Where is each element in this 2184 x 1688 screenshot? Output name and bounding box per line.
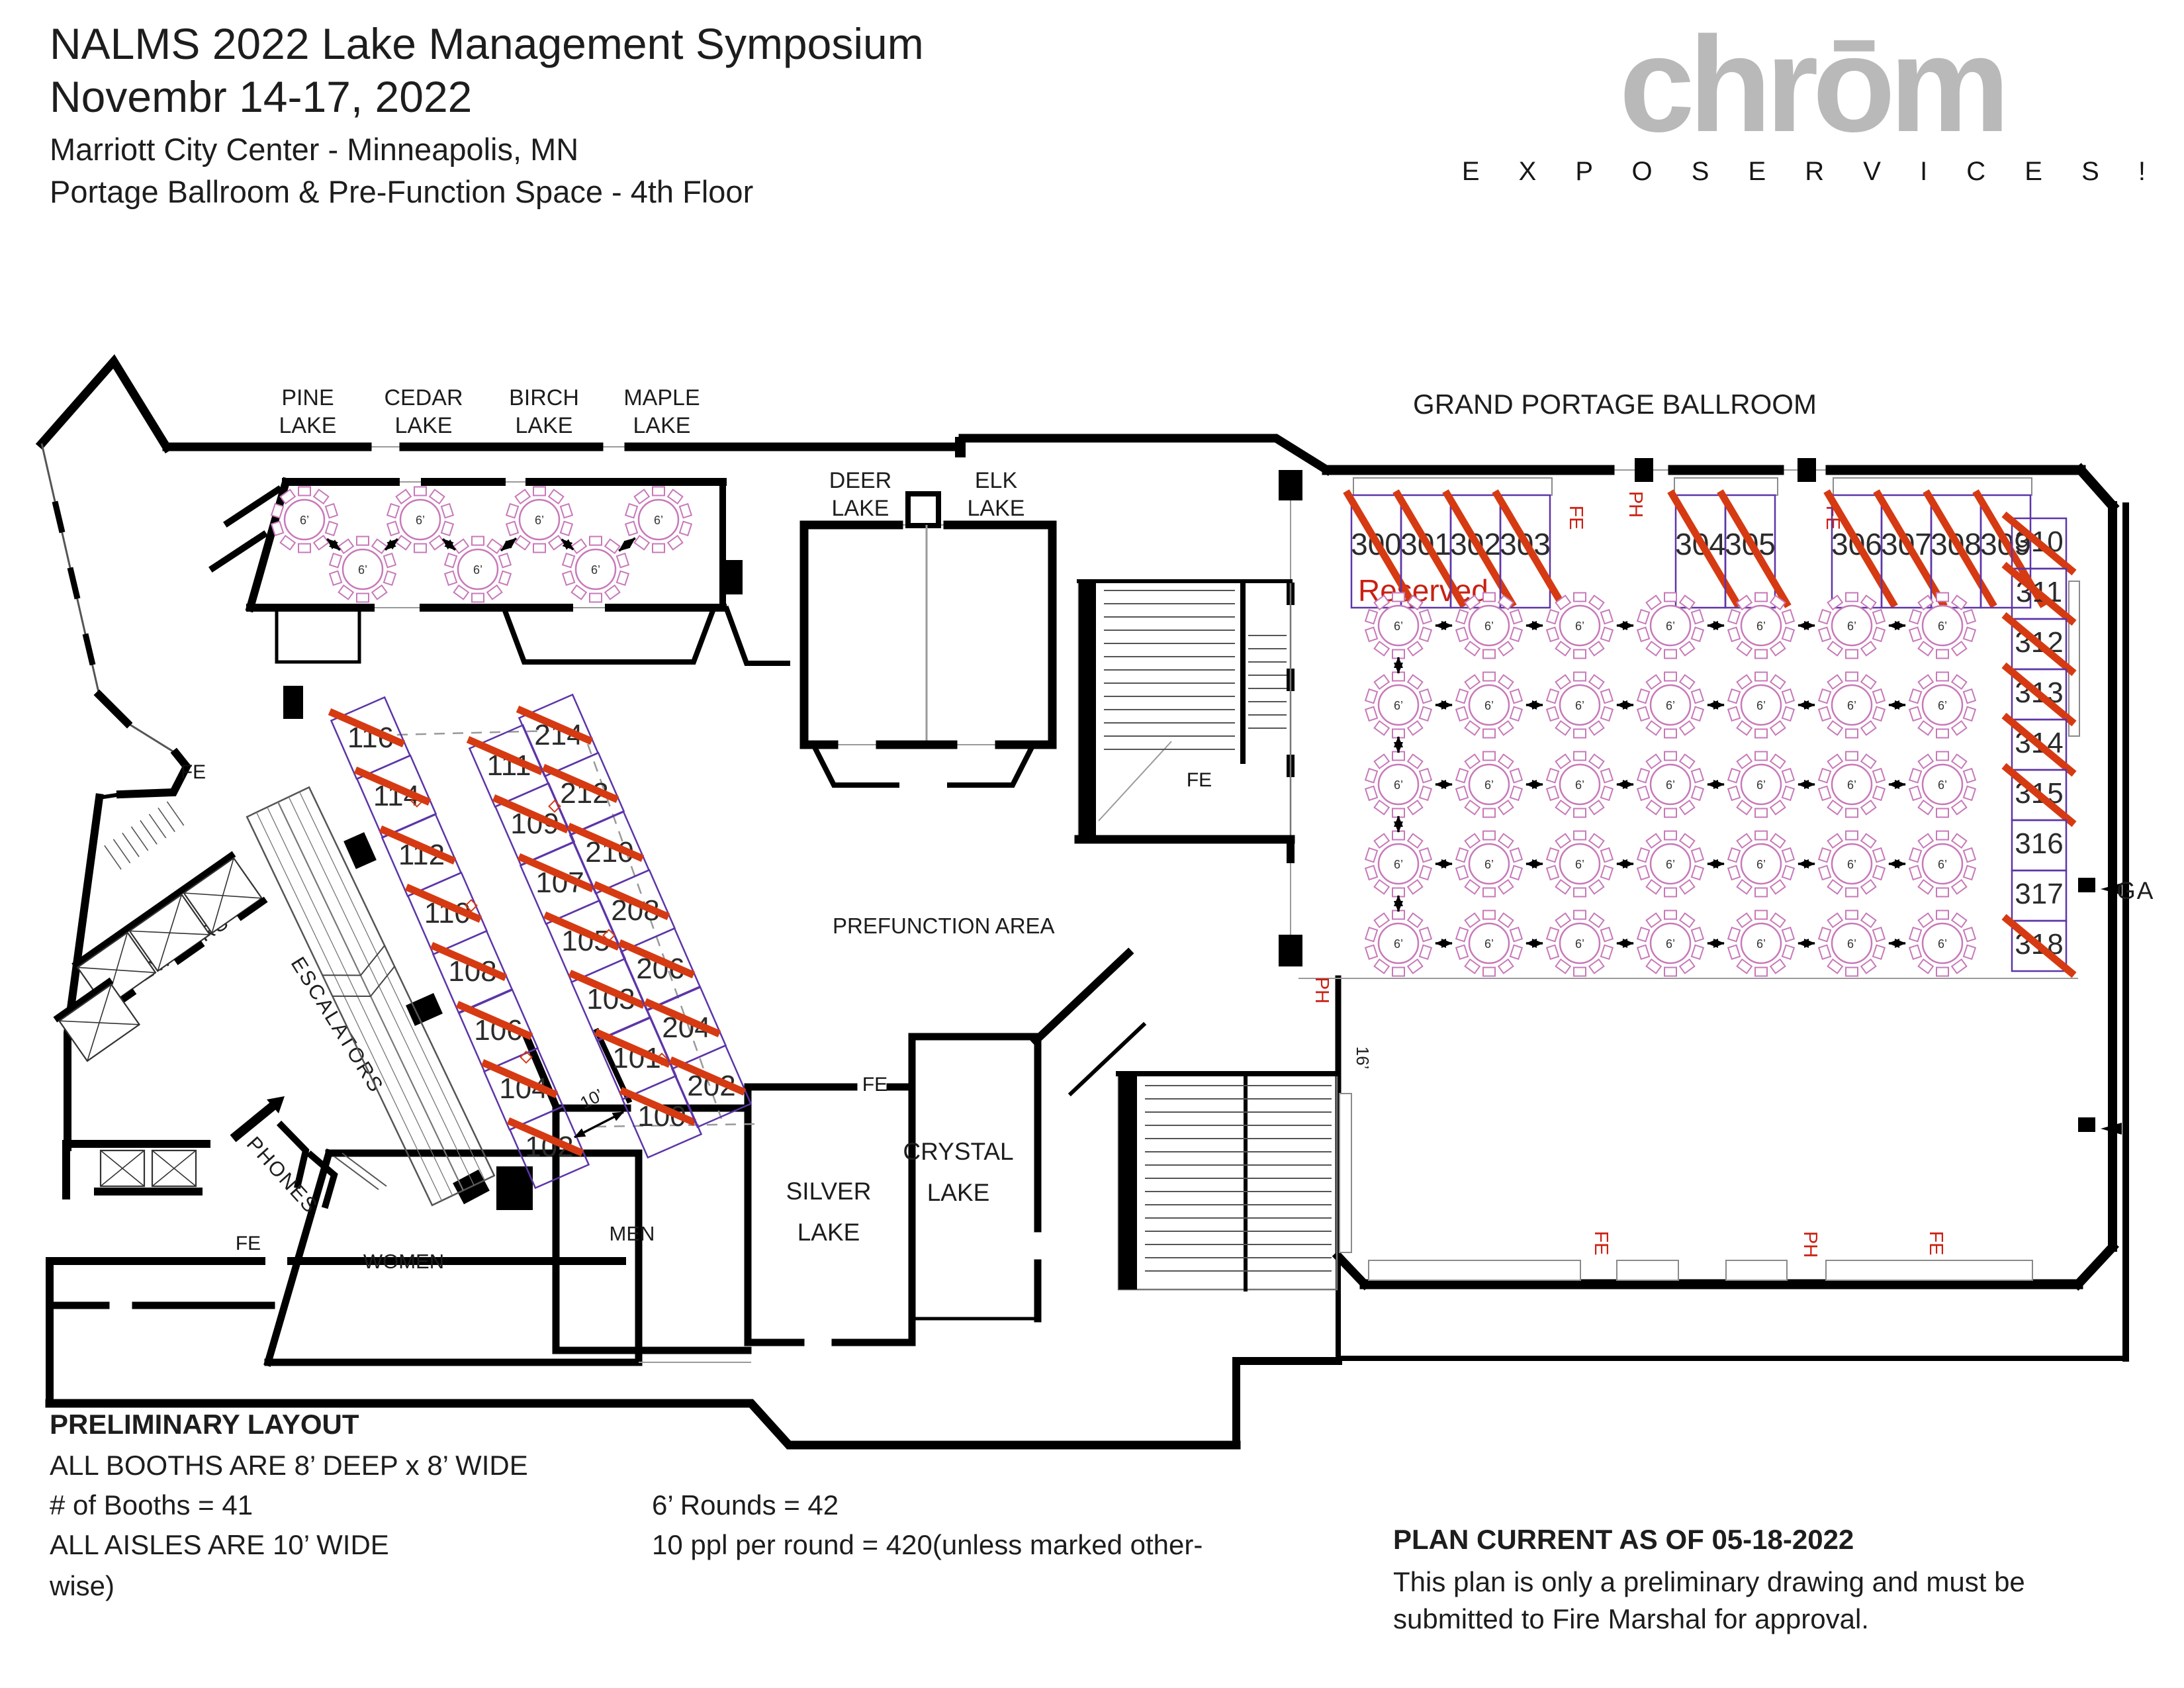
chair	[1456, 689, 1468, 703]
chair	[1680, 800, 1694, 814]
chair	[330, 553, 341, 567]
table-size-label: 6’	[473, 563, 482, 577]
chair	[1589, 721, 1604, 735]
chair	[668, 490, 682, 504]
room-label-elk-lake: ELK	[975, 468, 1018, 493]
chair	[1365, 945, 1377, 959]
chair	[1574, 809, 1586, 818]
chair	[396, 490, 411, 504]
chair	[1556, 959, 1570, 973]
round-table: 6’	[1819, 593, 1885, 659]
chair	[1664, 752, 1676, 761]
round-table: 6’	[1637, 831, 1704, 897]
chair	[1365, 927, 1377, 941]
marker-ph: PH	[1625, 491, 1646, 518]
chair	[1365, 866, 1377, 880]
chair	[1846, 809, 1858, 818]
spacing-arrow	[562, 539, 574, 549]
stairs-lower	[1145, 1086, 1332, 1271]
chair	[1465, 800, 1480, 814]
chair	[1664, 888, 1676, 897]
chair	[1952, 880, 1966, 894]
chair	[1420, 769, 1432, 782]
chair	[1737, 914, 1752, 927]
table-size-label: 6’	[300, 514, 309, 527]
table-size-label: 6’	[1938, 778, 1947, 792]
room-label-silver-lake: SILVER	[786, 1178, 872, 1205]
marker-fe: FE	[1565, 505, 1586, 530]
chair	[1483, 593, 1495, 602]
chair	[1936, 593, 1948, 602]
chair	[1365, 848, 1377, 862]
chair	[1936, 650, 1948, 659]
stairs-upper	[1104, 590, 1287, 749]
chair	[1510, 786, 1522, 800]
room-label-phones: PHONES	[242, 1132, 323, 1218]
spacing-arrow	[385, 539, 398, 549]
room-label-crystal-lake: LAKE	[927, 1179, 990, 1206]
chair	[1919, 959, 1933, 973]
chair	[1589, 641, 1604, 655]
round-table: 6’	[1637, 911, 1704, 976]
chair	[1589, 800, 1604, 814]
chair	[1637, 610, 1649, 624]
table-size-label: 6’	[1756, 699, 1766, 712]
note-booth-count: # of Booths = 41	[50, 1485, 253, 1525]
chair	[1737, 755, 1752, 769]
chair	[516, 536, 530, 549]
chair	[472, 537, 484, 545]
round-table: 6’	[1547, 752, 1613, 818]
chair	[1692, 848, 1704, 862]
chair	[1909, 610, 1921, 624]
chair	[1936, 831, 1948, 840]
table-size-label: 6’	[1756, 937, 1766, 951]
spacing-arrow	[574, 1112, 623, 1137]
chair	[1408, 880, 1422, 894]
chair	[1861, 914, 1876, 927]
chair	[1420, 628, 1432, 641]
chair	[1420, 866, 1432, 880]
chair	[1692, 769, 1704, 782]
chair	[298, 487, 310, 496]
chair	[563, 571, 574, 585]
chair	[1692, 927, 1704, 941]
chair	[1861, 641, 1876, 655]
chair	[1664, 673, 1676, 681]
table-size-label: 6’	[1394, 937, 1403, 951]
room-label-grand-portage-ballroom: GRAND PORTAGE BALLROOM	[1413, 389, 1817, 420]
chair	[1680, 834, 1694, 848]
chair	[1680, 959, 1694, 973]
chair	[1692, 707, 1704, 721]
table-size-label: 6’	[1575, 937, 1584, 951]
chair	[454, 539, 469, 553]
chair	[1547, 945, 1559, 959]
chair	[357, 537, 369, 545]
round-table: 6’	[1728, 911, 1794, 976]
chair	[1755, 888, 1767, 897]
chair	[1647, 959, 1661, 973]
page: NALMS 2022 Lake Management Symposium Nov…	[0, 0, 2184, 1688]
chair	[1601, 866, 1613, 880]
chair	[1637, 689, 1649, 703]
chair	[1483, 911, 1495, 919]
table-size-label: 6’	[1666, 699, 1675, 712]
chair	[1770, 880, 1785, 894]
chair	[1647, 914, 1661, 927]
chair	[1392, 593, 1404, 602]
chair	[533, 544, 545, 553]
chair	[1873, 848, 1885, 862]
chair	[1365, 707, 1377, 721]
table-size-label: 6’	[654, 514, 663, 527]
chair	[1465, 675, 1480, 689]
chair	[1755, 911, 1767, 919]
chair	[1846, 673, 1858, 681]
chair	[1498, 834, 1513, 848]
table-size-label: 6’	[1666, 620, 1675, 633]
chair	[1728, 786, 1740, 800]
round-table: 6’	[1456, 673, 1522, 738]
chair	[1465, 721, 1480, 735]
chair	[1819, 945, 1831, 959]
chair	[1456, 628, 1468, 641]
chair	[1873, 945, 1885, 959]
chair	[1919, 880, 1933, 894]
chair	[516, 490, 530, 504]
table-size-label: 6’	[1938, 699, 1947, 712]
chair	[1547, 927, 1559, 941]
chair	[1873, 769, 1885, 782]
chair	[1510, 945, 1522, 959]
chair	[1770, 914, 1785, 927]
chair	[680, 522, 692, 536]
round-table: 6’	[1819, 752, 1885, 818]
chair	[1782, 628, 1794, 641]
chair	[1664, 831, 1676, 840]
chair	[1819, 848, 1831, 862]
table-size-label: 6’	[1847, 699, 1856, 712]
note-rounds-count: 6’ Rounds = 42	[652, 1485, 839, 1525]
chair	[1828, 675, 1843, 689]
chair	[1782, 707, 1794, 721]
table-size-label: 6’	[1847, 620, 1856, 633]
marker-ph: PH	[1799, 1231, 1821, 1258]
table-size-label: 6’	[1394, 699, 1403, 712]
chair	[1574, 650, 1586, 659]
table-size-label: 6’	[1484, 937, 1494, 951]
chair	[1873, 628, 1885, 641]
chair	[1909, 707, 1921, 721]
chair	[1964, 866, 1976, 880]
chair	[1692, 945, 1704, 959]
round-table: 6’	[1456, 752, 1522, 818]
chair	[1680, 721, 1694, 735]
chair	[1873, 689, 1885, 703]
table-size-label: 6’	[591, 563, 600, 577]
chair	[1408, 641, 1422, 655]
round-table: 6’	[445, 537, 511, 602]
chair	[1498, 800, 1513, 814]
chair	[1737, 880, 1752, 894]
chair	[387, 522, 399, 536]
room-label-ga: GA	[2116, 877, 2154, 904]
chair	[430, 490, 444, 504]
chair	[1647, 800, 1661, 814]
chair	[1770, 721, 1785, 735]
table-size-label: 6’	[416, 514, 425, 527]
chair	[653, 544, 664, 553]
chair	[1770, 641, 1785, 655]
chair	[1375, 880, 1389, 894]
chair	[1919, 755, 1933, 769]
chair	[1601, 848, 1613, 862]
chair	[1919, 721, 1933, 735]
chair	[1952, 641, 1966, 655]
chair	[1770, 800, 1785, 814]
table-size-label: 6’	[1394, 620, 1403, 633]
chair	[1755, 650, 1767, 659]
chair	[1952, 959, 1966, 973]
chair	[1601, 786, 1613, 800]
round-table: 6’	[1728, 673, 1794, 738]
round-table: 6’	[1365, 831, 1432, 897]
room-label-birch-lake: BIRCH	[509, 385, 579, 410]
chair	[1782, 945, 1794, 959]
round-table: 6’	[330, 537, 396, 602]
chair	[1510, 866, 1522, 880]
note-ppl-per-round: 10 ppl per round = 420(unless marked oth…	[652, 1525, 1203, 1565]
chair	[1782, 610, 1794, 624]
chair	[1873, 866, 1885, 880]
chair	[1556, 914, 1570, 927]
table-size-label: 6’	[1938, 858, 1947, 871]
chair	[1589, 675, 1604, 689]
chair	[1498, 641, 1513, 655]
walls	[42, 361, 2126, 1445]
chair	[430, 536, 444, 549]
chair	[1392, 729, 1404, 738]
round-table: 6’	[1547, 593, 1613, 659]
chair	[1408, 755, 1422, 769]
chair	[506, 522, 518, 536]
chair	[1483, 888, 1495, 897]
chair	[1465, 641, 1480, 655]
booth-114: 114	[355, 755, 436, 837]
note-preliminary-layout: PRELIMINARY LAYOUT	[50, 1405, 359, 1444]
chair	[1574, 968, 1586, 976]
chair	[1392, 831, 1404, 840]
chair	[1601, 610, 1613, 624]
chair	[1755, 831, 1767, 840]
table-size-label: 6’	[1666, 937, 1675, 951]
table-size-label: 6’	[1394, 778, 1403, 792]
chair	[1755, 673, 1767, 681]
chair	[1692, 689, 1704, 703]
round-table: 6’	[1637, 593, 1704, 659]
room-label-pine-lake: PINE	[281, 385, 334, 410]
chair	[1828, 914, 1843, 927]
chair	[1755, 968, 1767, 976]
chair	[454, 585, 469, 599]
round-table: 6’	[506, 487, 572, 553]
spacing-arrow	[619, 538, 635, 551]
chair	[1819, 866, 1831, 880]
round-table: 6’	[1365, 673, 1432, 738]
chair	[1483, 650, 1495, 659]
round-table: 6’	[1909, 831, 1976, 897]
chair	[1637, 927, 1649, 941]
chair	[1846, 729, 1858, 738]
chair	[1952, 721, 1966, 735]
chair	[1637, 848, 1649, 862]
chair	[1456, 769, 1468, 782]
round-table: 6’	[1456, 593, 1522, 659]
chair	[499, 571, 511, 585]
booth-318: 318	[2004, 917, 2074, 975]
chair	[1408, 914, 1422, 927]
chair	[1375, 800, 1389, 814]
chair	[1574, 729, 1586, 738]
chair	[1408, 959, 1422, 973]
chair	[1846, 593, 1858, 602]
booth-number: 316	[2015, 827, 2063, 860]
chair	[1846, 650, 1858, 659]
chair	[1483, 831, 1495, 840]
chair	[1375, 914, 1389, 927]
chair	[1556, 721, 1570, 735]
room-label-women: WOMEN	[363, 1250, 444, 1273]
chair	[1498, 880, 1513, 894]
chair	[1692, 628, 1704, 641]
chair	[1680, 755, 1694, 769]
chair	[572, 585, 586, 599]
chair	[1483, 729, 1495, 738]
chair	[1909, 866, 1921, 880]
chair	[1637, 786, 1649, 800]
chair	[1574, 673, 1586, 681]
chair	[1919, 675, 1933, 689]
chair	[1936, 729, 1948, 738]
chair	[1846, 831, 1858, 840]
chair	[1556, 755, 1570, 769]
chair	[1964, 769, 1976, 782]
table-size-label: 6’	[1484, 699, 1494, 712]
round-table: 6’	[1547, 831, 1613, 897]
chair	[1375, 834, 1389, 848]
booth-108: 108	[432, 931, 512, 1012]
chair	[1456, 945, 1468, 959]
chair	[330, 571, 341, 585]
chair	[1936, 968, 1948, 976]
booth-110: 110	[406, 872, 487, 954]
round-table: 6’	[1909, 752, 1976, 818]
chair	[1737, 641, 1752, 655]
booth-313: 313	[2004, 665, 2074, 724]
chair	[653, 487, 664, 496]
chair	[1664, 650, 1676, 659]
chair	[1919, 834, 1933, 848]
chair	[1365, 786, 1377, 800]
chair	[1964, 628, 1976, 641]
booth-number: 317	[2015, 878, 2063, 910]
chair	[1510, 848, 1522, 862]
chair	[1819, 689, 1831, 703]
spacing-arrow	[443, 539, 455, 549]
round-table: 6’	[1456, 911, 1522, 976]
chair	[1861, 675, 1876, 689]
room-label-crystal-lake: CRYSTAL	[903, 1138, 1013, 1165]
chair	[1819, 769, 1831, 782]
chair	[1601, 689, 1613, 703]
chair	[1861, 834, 1876, 848]
round-table: 6’	[1637, 673, 1704, 738]
chair	[1909, 689, 1921, 703]
table-size-label: 6’	[1575, 778, 1584, 792]
chair	[1828, 880, 1843, 894]
chair	[1375, 641, 1389, 655]
round-table: 6’	[271, 487, 338, 553]
chair	[1408, 834, 1422, 848]
chair	[1919, 641, 1933, 655]
table-size-label: 6’	[1847, 858, 1856, 871]
marker-fe: FE	[236, 1233, 261, 1254]
chair	[1556, 675, 1570, 689]
chair	[1828, 834, 1843, 848]
chair	[1728, 945, 1740, 959]
round-table: 6’	[1547, 673, 1613, 738]
chair	[1589, 755, 1604, 769]
chair	[1952, 675, 1966, 689]
marker-fe: FE	[1925, 1231, 1946, 1255]
chair	[1782, 689, 1794, 703]
chair	[635, 490, 649, 504]
chair	[1420, 786, 1432, 800]
chair	[635, 536, 649, 549]
chair	[605, 539, 619, 553]
round-table: 6’	[1909, 673, 1976, 738]
booth-106: 106	[457, 990, 538, 1071]
chair	[1782, 769, 1794, 782]
chair	[1465, 755, 1480, 769]
chair	[1828, 755, 1843, 769]
chair	[1498, 675, 1513, 689]
chair	[339, 539, 353, 553]
chair	[1952, 834, 1966, 848]
chair	[1510, 927, 1522, 941]
chair	[1483, 809, 1495, 818]
chair	[680, 504, 692, 518]
chair	[1664, 593, 1676, 602]
chair	[1828, 800, 1843, 814]
room-label-men: MEN	[610, 1222, 655, 1245]
chair	[1498, 755, 1513, 769]
chair	[1680, 880, 1694, 894]
chair	[487, 585, 502, 599]
marker-fe: FE	[181, 761, 206, 783]
round-table: 6’	[1547, 911, 1613, 976]
chair	[1601, 769, 1613, 782]
chair	[1770, 959, 1785, 973]
chair	[1601, 707, 1613, 721]
booth-116: 116	[330, 697, 410, 778]
chair	[1574, 888, 1586, 897]
chair	[1456, 866, 1468, 880]
chair	[1365, 689, 1377, 703]
chair	[549, 536, 563, 549]
room-label-deer-lake: LAKE	[832, 496, 889, 521]
